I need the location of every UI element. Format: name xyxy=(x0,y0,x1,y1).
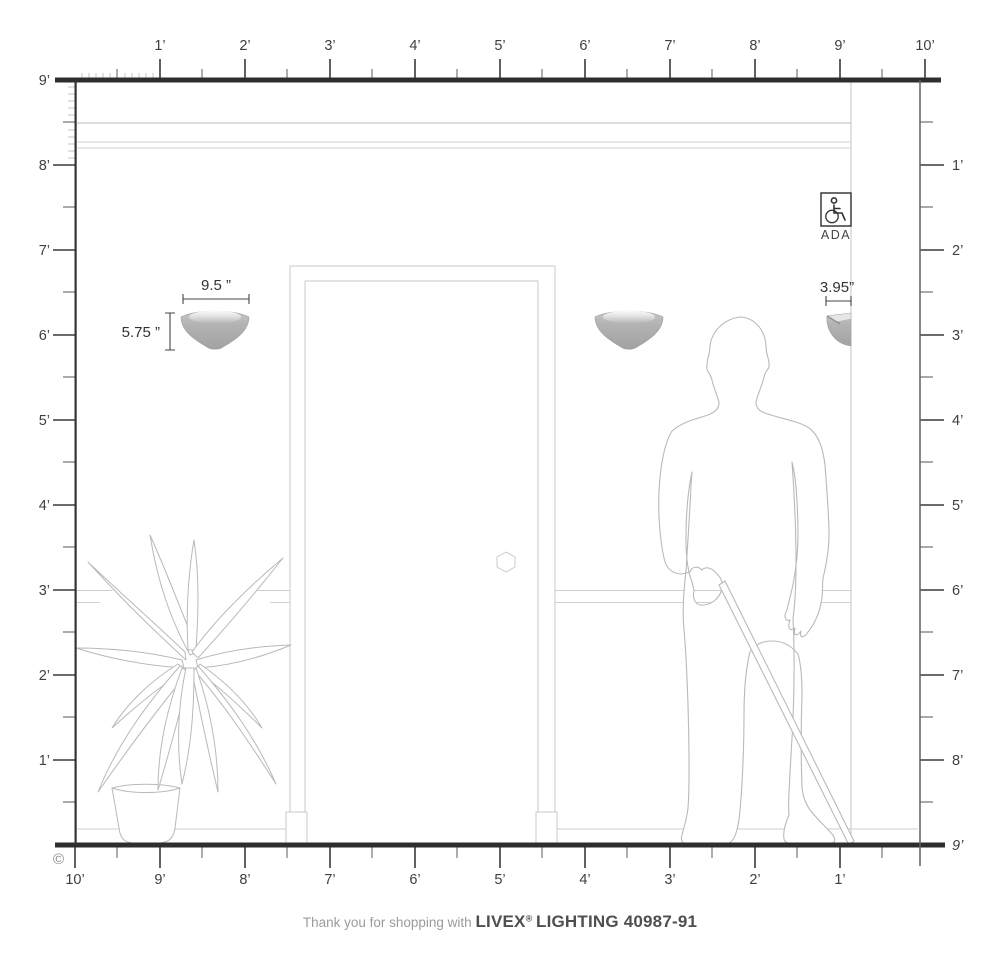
person-silhouette xyxy=(659,317,854,845)
ruler-label: 4’ xyxy=(952,413,963,429)
door-plinth-right xyxy=(536,812,557,845)
elevation-diagram-page: 9.5 ” 5.75 ” 3.95” ADA xyxy=(0,0,1000,959)
person-body xyxy=(659,317,835,845)
ruler-label: 2’ xyxy=(952,243,963,259)
sconce-profile-right xyxy=(827,313,851,346)
ruler-label: 6’ xyxy=(409,872,420,888)
ruler-label: 6’ xyxy=(39,328,50,344)
ruler-label: 1’ xyxy=(154,38,165,54)
ruler-label: 5’ xyxy=(39,413,50,429)
ceiling-line xyxy=(55,78,941,83)
ruler-label: 8’ xyxy=(239,872,250,888)
footer-brand-name: LIVEX xyxy=(475,912,525,931)
fixture-height-label: 5.75 ” xyxy=(122,324,160,341)
ruler-label: 9’ xyxy=(39,73,50,89)
ruler-label-floor: 9’ xyxy=(952,838,964,854)
ruler-label: 2’ xyxy=(749,872,760,888)
ruler-label: 2’ xyxy=(39,668,50,684)
plant-pot-rim xyxy=(112,784,180,788)
ruler-label: 5’ xyxy=(494,38,505,54)
sconce-left xyxy=(181,311,249,350)
elevation-diagram: 9.5 ” 5.75 ” 3.95” ADA xyxy=(0,0,1000,959)
ruler-label: 3’ xyxy=(39,583,50,599)
sconce-middle xyxy=(595,311,663,350)
footer-product-number: LIGHTING 40987-91 xyxy=(536,912,697,931)
door-plinth-left xyxy=(286,812,307,845)
left-ruler-line xyxy=(75,80,77,845)
left-ruler-labels: 9’ 8’ 7’ 6’ 5’ 4’ 3’ 2’ 1’ xyxy=(39,73,50,769)
fixture-width-label: 9.5 ” xyxy=(201,277,231,294)
floor-line xyxy=(55,843,945,848)
top-ruler-labels: 1’ 2’ 3’ 4’ 5’ 6’ 7’ 8’ 9’ 10’ xyxy=(154,38,934,54)
ruler-label: 3’ xyxy=(664,872,675,888)
ruler-label: 9’ xyxy=(834,38,845,54)
ruler-label: 7’ xyxy=(324,872,335,888)
ruler-label: 1’ xyxy=(834,872,845,888)
ruler-label: 1’ xyxy=(952,158,963,174)
ada-badge: ADA xyxy=(821,193,851,242)
ruler-label: 8’ xyxy=(39,158,50,174)
right-ruler-labels: 1’ 2’ 3’ 4’ 5’ 6’ 7’ 8’ 9’ xyxy=(952,158,964,854)
ruler-label: 10’ xyxy=(65,872,84,888)
door-knob xyxy=(497,552,515,572)
ceiling-trim-lines xyxy=(77,142,851,148)
ruler-label: 1’ xyxy=(39,753,50,769)
ruler-label: 4’ xyxy=(409,38,420,54)
bottom-ruler-labels: 10’ 9’ 8’ 7’ 6’ 5’ 4’ 3’ 2’ 1’ xyxy=(65,872,845,888)
ruler-label: 10’ xyxy=(915,38,934,54)
ruler-label: 7’ xyxy=(664,38,675,54)
projection-dimension-line xyxy=(826,296,851,306)
ruler-label: 5’ xyxy=(952,498,963,514)
ruler-label: 8’ xyxy=(749,38,760,54)
ada-label: ADA xyxy=(821,228,851,242)
right-ruler-half-ticks xyxy=(920,122,933,802)
door xyxy=(286,266,557,845)
potted-plant xyxy=(76,535,291,844)
ruler-label: 7’ xyxy=(952,668,963,684)
ruler-label: 4’ xyxy=(579,872,590,888)
ruler-label: 8’ xyxy=(952,753,963,769)
plant-pot xyxy=(112,788,180,844)
ruler-label: 2’ xyxy=(239,38,250,54)
ruler-label: 3’ xyxy=(324,38,335,54)
width-dimension-line xyxy=(183,294,249,304)
height-dimension-line xyxy=(165,313,175,350)
registered-trademark: ® xyxy=(526,914,533,924)
ruler-label: 6’ xyxy=(952,583,963,599)
ruler-label: 7’ xyxy=(39,243,50,259)
ruler-label: 4’ xyxy=(39,498,50,514)
footer: Thank you for shopping with LIVEX® LIGHT… xyxy=(0,912,1000,932)
plant-leaf xyxy=(187,540,198,650)
ruler-label: 3’ xyxy=(952,328,963,344)
ruler-label: 6’ xyxy=(579,38,590,54)
fixture-projection-label: 3.95” xyxy=(820,279,854,296)
ruler-label: 5’ xyxy=(494,872,505,888)
footer-thanks-text: Thank you for shopping with xyxy=(303,915,472,930)
left-ruler-half-ticks xyxy=(63,122,75,802)
ruler-label: 9’ xyxy=(154,872,165,888)
copyright-symbol: © xyxy=(53,851,64,868)
